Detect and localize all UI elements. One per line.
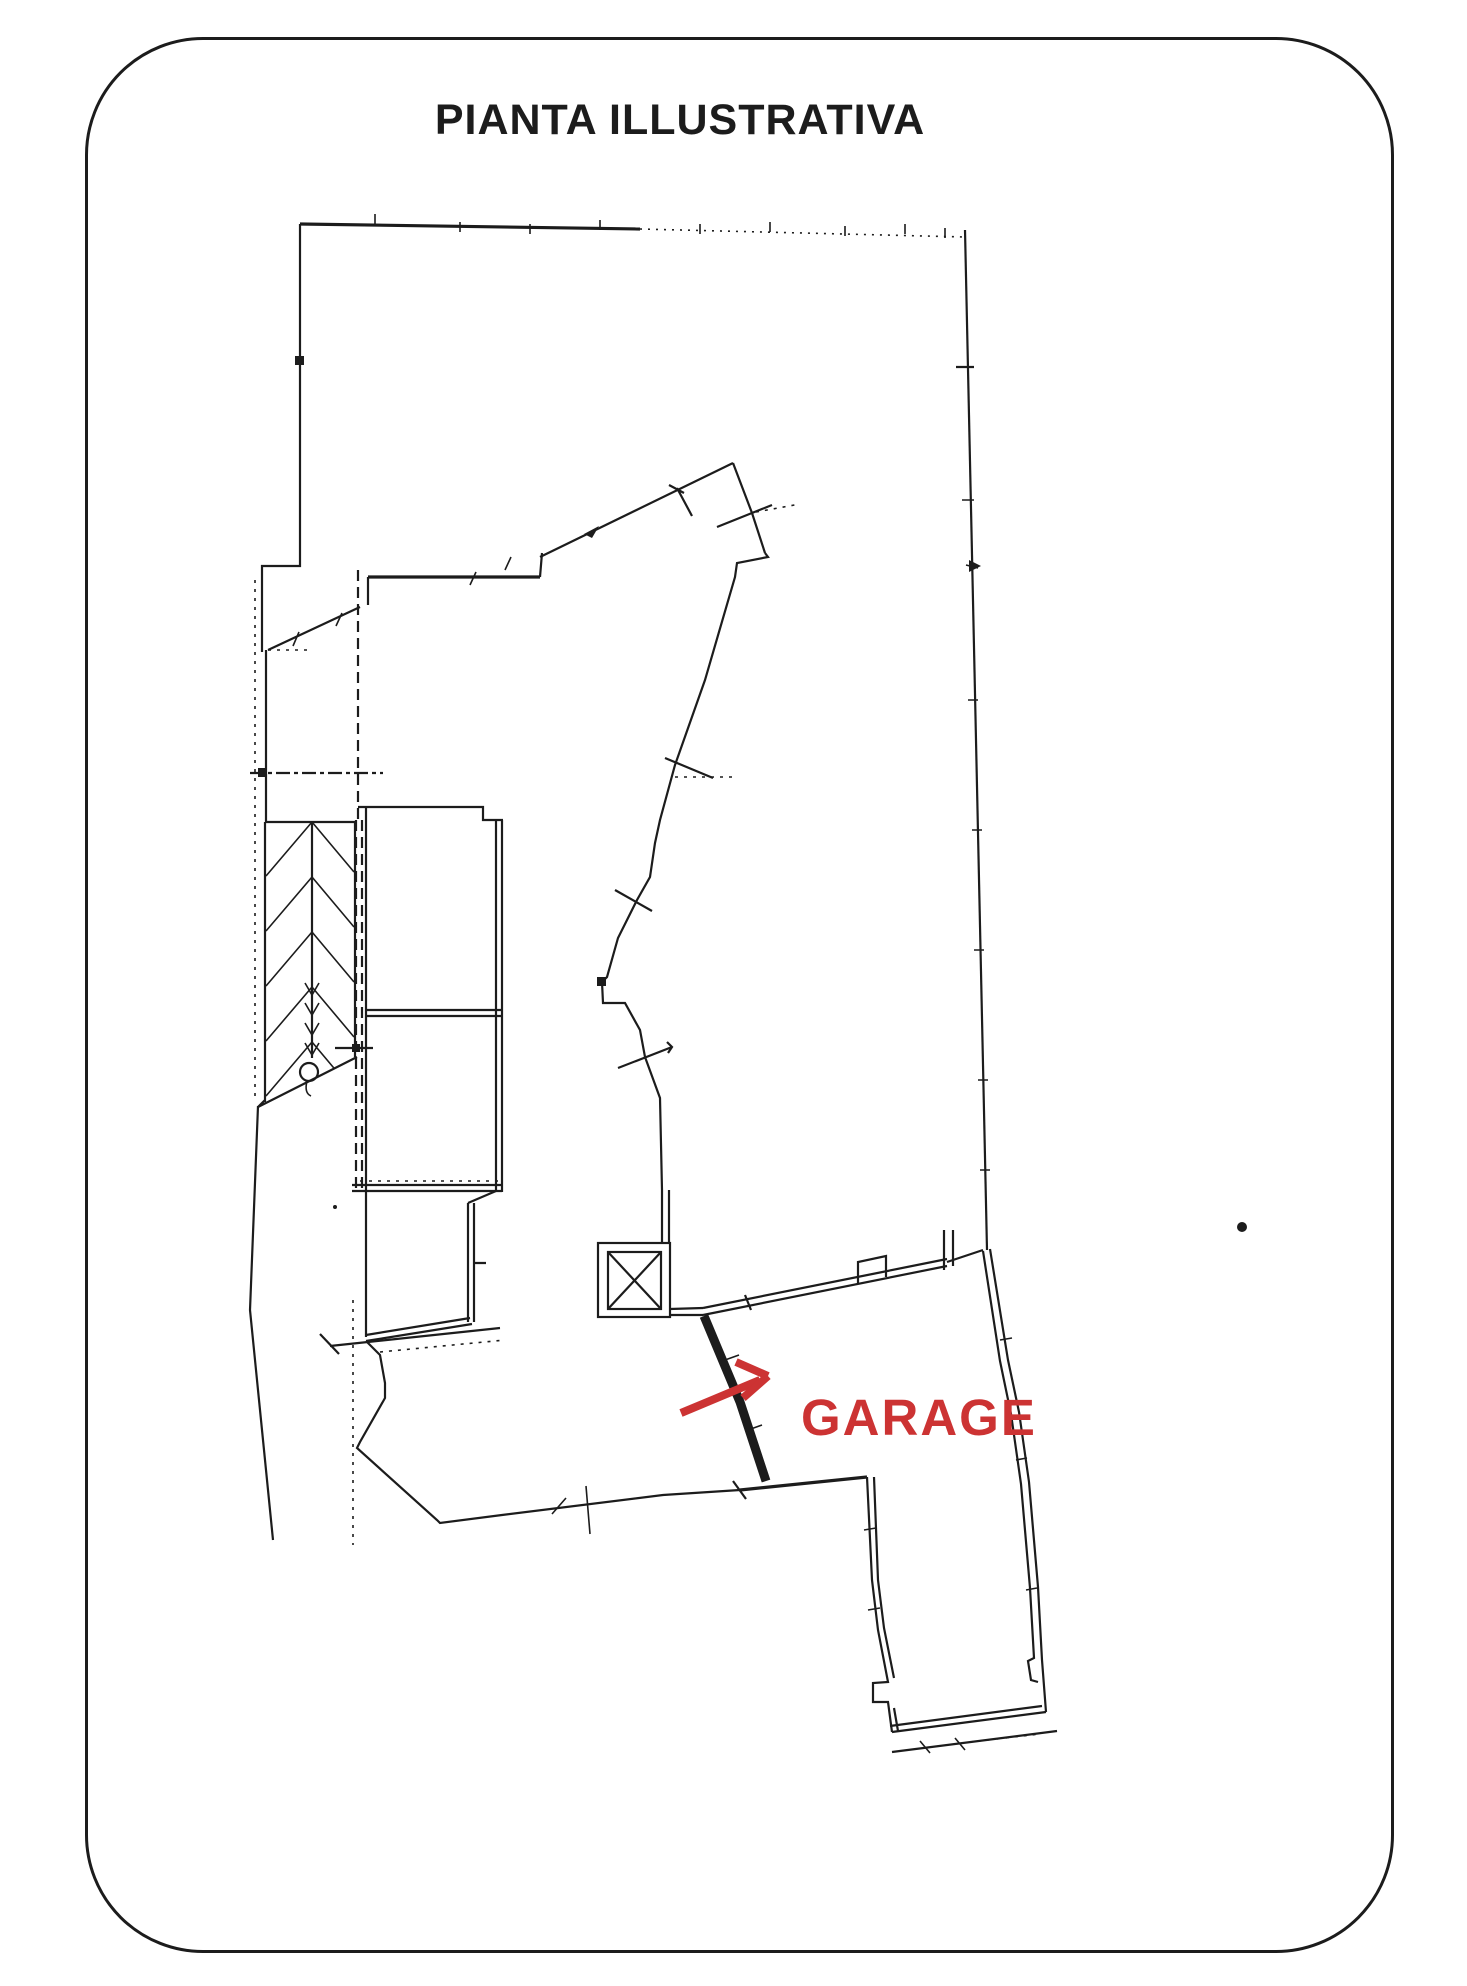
room-divider-2 — [352, 1185, 502, 1191]
left-structures — [250, 553, 542, 1190]
ramp-hatching — [266, 822, 354, 1151]
apartment-walls — [470, 463, 800, 1243]
elevator-upper-wall — [662, 1190, 669, 1243]
garage-top-wall — [703, 1259, 947, 1315]
garage-left-wall-outer — [867, 1477, 892, 1732]
top-boundary-line — [300, 214, 965, 238]
garage-lower-parallel-line — [892, 1731, 1057, 1752]
central-wall — [602, 553, 768, 1190]
diagonal-tick-mark — [584, 526, 599, 538]
garage-left-wall-inner — [874, 1477, 898, 1731]
staircase-ramp — [258, 822, 357, 1151]
garage-label: GARAGE — [801, 1388, 1037, 1447]
right-line-arrow-mark — [969, 560, 981, 572]
nw-diagonal-wall — [540, 463, 733, 557]
room-inner-wall — [468, 1191, 496, 1322]
ramp-direction-arrow — [300, 822, 319, 1096]
tick-line-1048 — [335, 1044, 373, 1052]
left-diagonal-wall — [268, 607, 360, 650]
bottom-boundary-line — [357, 1341, 740, 1523]
garage-lowerleft-wall — [740, 1477, 867, 1490]
scanned-plan-page: { "page": { "title": "PIANTA ILLUSTRATIV… — [0, 0, 1467, 1986]
ne-edge — [733, 463, 765, 553]
left-boundary-line — [250, 224, 304, 1540]
survey-line — [250, 768, 383, 777]
garage-right-wall-inner — [983, 1251, 1038, 1682]
garage-top-stub — [944, 1230, 953, 1270]
scan-speck — [333, 1205, 337, 1209]
garage-bottom-wall — [890, 1706, 1046, 1732]
floor-plan-drawing — [0, 0, 1467, 1986]
opening-slash-1 — [717, 505, 772, 527]
ramp-outline — [258, 822, 357, 1107]
scan-dot — [1237, 1222, 1247, 1232]
rooms-block — [320, 807, 505, 1354]
dashed-wall-double — [356, 820, 362, 1190]
elevator-x-mark — [608, 1252, 661, 1309]
room-right-wall — [496, 820, 502, 1192]
garage-right-wall-outer — [990, 1249, 1046, 1712]
room-top-wall — [358, 807, 503, 820]
lower-parallel-line — [330, 1328, 500, 1346]
elevator-shaft — [598, 1243, 670, 1317]
right-boundary-line — [956, 230, 990, 1250]
room-divider-1 — [366, 1010, 502, 1016]
